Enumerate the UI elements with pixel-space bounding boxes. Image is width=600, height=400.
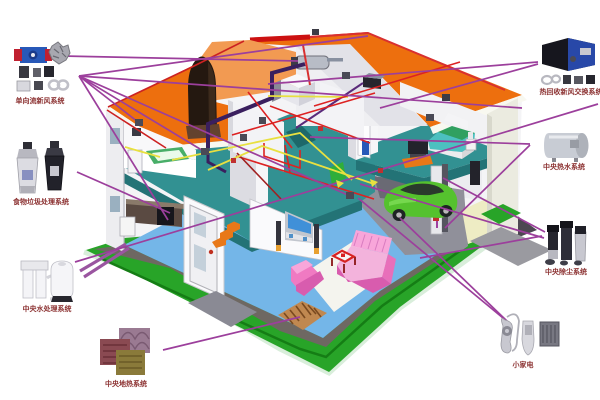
svg-text:热回收新风交换系统: 热回收新风交换系统 (540, 87, 600, 96)
svg-text:中央地热系统: 中央地热系统 (105, 379, 147, 388)
svg-text:小家电: 小家电 (512, 360, 534, 369)
svg-text:中央热水系统: 中央热水系统 (543, 162, 585, 171)
svg-text:中央除尘系统: 中央除尘系统 (545, 267, 587, 276)
svg-text:食物垃圾处理系统: 食物垃圾处理系统 (12, 197, 69, 206)
svg-text:单向流新风系统: 单向流新风系统 (16, 96, 65, 105)
svg-text:中央水处理系统: 中央水处理系统 (23, 304, 72, 313)
